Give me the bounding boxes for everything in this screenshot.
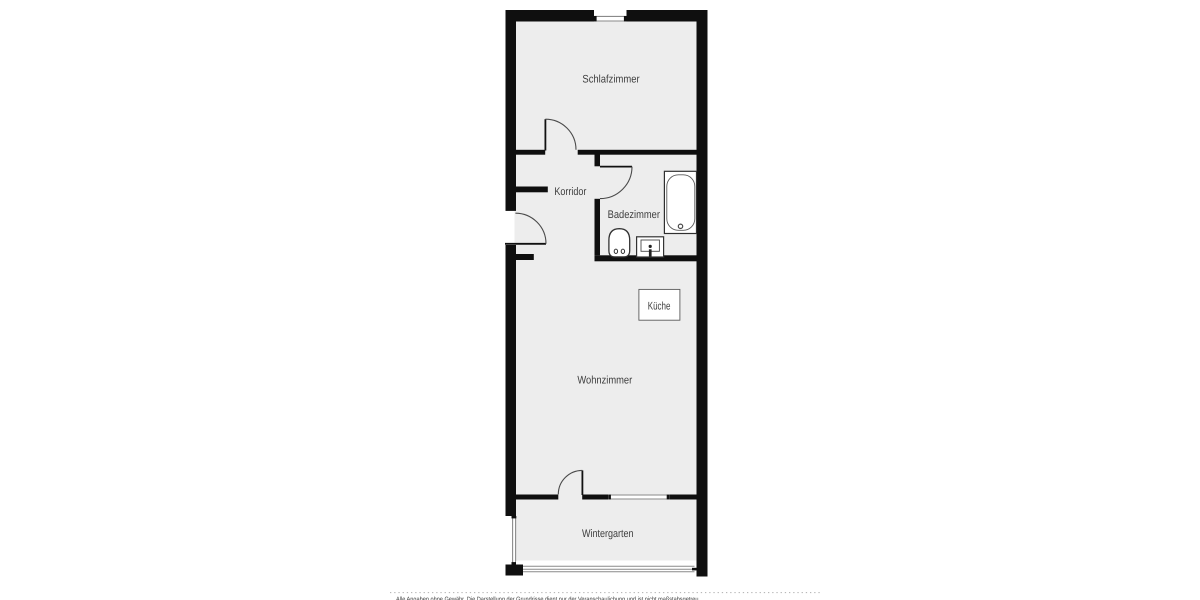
svg-text:Wohnzimmer: Wohnzimmer [577,374,632,386]
svg-text:Badezimmer: Badezimmer [608,209,661,221]
svg-text:Korridor: Korridor [554,186,586,198]
svg-text:Schlafzimmer: Schlafzimmer [582,73,639,85]
svg-text:Wintergarten: Wintergarten [582,528,634,540]
svg-text:Alle Angaben ohne Gewähr. Die: Alle Angaben ohne Gewähr. Die Darstellun… [396,596,700,600]
svg-text:Küche: Küche [648,300,671,312]
